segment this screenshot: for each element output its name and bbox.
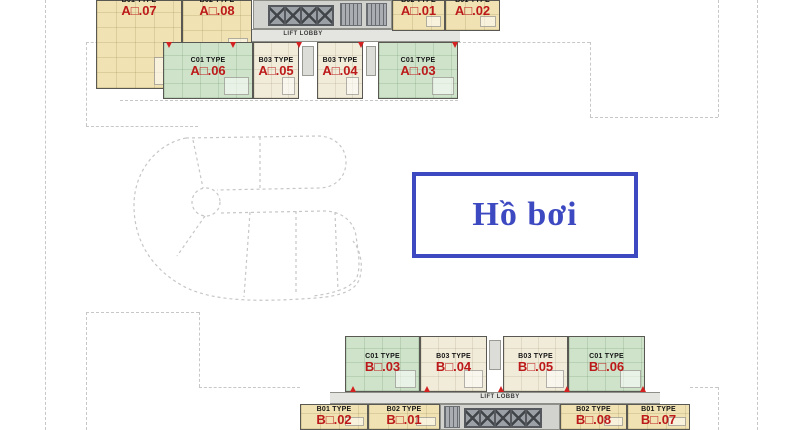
boundary-line [590, 42, 591, 117]
entry-arrow-icon [640, 386, 646, 392]
stair-block [444, 406, 460, 428]
entry-arrow-icon [350, 386, 356, 392]
unit-label: B03 TYPE A□.05 [254, 57, 298, 78]
service-shaft [366, 46, 376, 76]
entry-arrow-icon [358, 42, 364, 48]
boundary-line [458, 42, 590, 43]
lift-lobby-label: LIFT LOBBY [460, 394, 540, 400]
boundary-line [86, 126, 198, 127]
unit-a02: B01 TYPE A□.02 [445, 0, 500, 31]
elevator-cell [512, 410, 525, 426]
pool-sign-label: Hồ bơi [472, 196, 577, 234]
unit-a04: B03 TYPE A□.04 [317, 42, 363, 99]
entry-arrow-icon [498, 386, 504, 392]
boundary-line [86, 42, 87, 126]
boundary-line [199, 312, 200, 387]
service-shaft [302, 46, 314, 76]
unit-label: B02 TYPE B□.01 [369, 406, 439, 427]
unit-a05: B03 TYPE A□.05 [253, 42, 299, 99]
unit-b03: C01 TYPE B□.03 [345, 336, 420, 392]
pool-landscape-outline [120, 128, 370, 313]
entry-arrow-icon [296, 42, 302, 48]
elevator-bank [464, 408, 542, 428]
unit-a01: B02 TYPE A□.01 [392, 0, 445, 31]
unit-label: B03 TYPE A□.04 [318, 57, 362, 78]
unit-a03: C01 TYPE A□.03 [378, 42, 458, 99]
unit-label: B02 TYPE A□.01 [393, 0, 444, 18]
boundary-line [590, 117, 718, 118]
stair-block [340, 3, 362, 26]
elevator-cell [466, 410, 479, 426]
boundary-line [120, 100, 458, 101]
elevator-cell [270, 7, 284, 24]
entry-arrow-icon [230, 42, 236, 48]
unit-label: B02 TYPE B□.08 [561, 406, 626, 427]
entry-arrow-icon [166, 42, 172, 48]
boundary-line [86, 312, 87, 430]
unit-label: B02 TYPE A□.08 [183, 0, 251, 18]
pool-sign: Hồ bơi [412, 172, 638, 258]
lift-lobby-label: LIFT LOBBY [253, 31, 353, 37]
unit-label: B01 TYPE B□.07 [628, 406, 689, 427]
elevator-cell [527, 410, 540, 426]
unit-b02: B01 TYPE B□.02 [300, 404, 368, 430]
unit-label: B01 TYPE A□.07 [97, 0, 181, 18]
boundary-line [199, 387, 300, 388]
elevator-bank [268, 5, 334, 26]
elevator-cell [286, 7, 300, 24]
unit-b04: B03 TYPE B□.04 [420, 336, 487, 392]
unit-label: B03 TYPE B□.05 [504, 353, 567, 374]
unit-label: B01 TYPE A□.02 [446, 0, 499, 18]
entry-arrow-icon [424, 386, 430, 392]
unit-label: C01 TYPE A□.03 [379, 57, 457, 78]
unit-b01: B02 TYPE B□.01 [368, 404, 440, 430]
unit-b05: B03 TYPE B□.05 [503, 336, 568, 392]
elevator-cell [496, 410, 509, 426]
boundary-line [690, 387, 718, 388]
boundary-line [718, 387, 719, 430]
unit-label: C01 TYPE B□.06 [569, 353, 644, 374]
elevator-cell [481, 410, 494, 426]
unit-label: C01 TYPE A□.06 [164, 57, 252, 78]
unit-label: B01 TYPE B□.02 [301, 406, 367, 427]
site-plan: LIFT LOBBY B01 TYPE A□.07 B02 TYPE A□.08… [0, 0, 810, 430]
unit-b06: C01 TYPE B□.06 [568, 336, 645, 392]
boundary-line [757, 0, 758, 430]
unit-label: C01 TYPE B□.03 [346, 353, 419, 374]
boundary-line [45, 0, 46, 430]
entry-arrow-icon [452, 42, 458, 48]
service-shaft [489, 340, 501, 370]
elevator-cell [302, 7, 316, 24]
unit-b07: B01 TYPE B□.07 [627, 404, 690, 430]
boundary-line [718, 0, 719, 117]
entry-arrow-icon [564, 386, 570, 392]
unit-b08: B02 TYPE B□.08 [560, 404, 627, 430]
unit-a06: C01 TYPE A□.06 [163, 42, 253, 99]
unit-label: B03 TYPE B□.04 [421, 353, 486, 374]
stair-block [366, 3, 387, 26]
elevator-cell [318, 7, 332, 24]
